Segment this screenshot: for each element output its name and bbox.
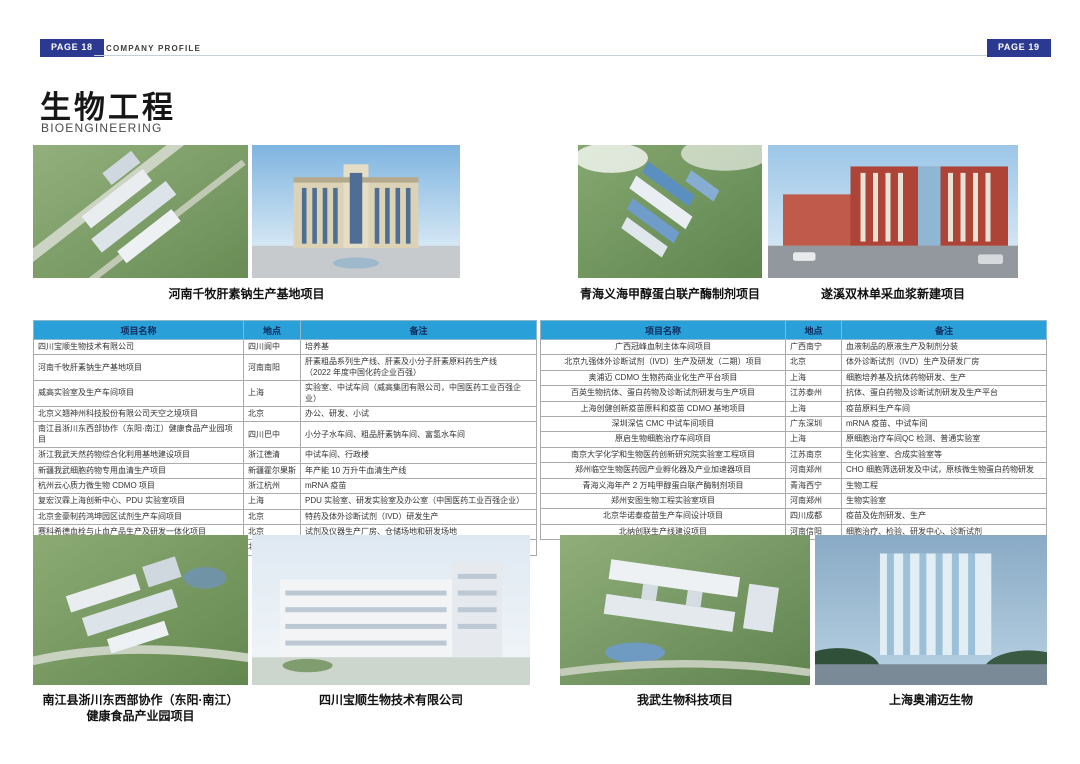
glass-building-illustration bbox=[815, 535, 1047, 685]
project-name-cell: 北京华诺泰疫苗生产车间设计项目 bbox=[541, 509, 786, 524]
project-note-cell: mRNA 疫苗、中试车间 bbox=[842, 416, 1047, 431]
project-note-cell: 特药及体外诊断试剂（IVD）研发生产 bbox=[301, 509, 537, 524]
project-location-cell: 北京 bbox=[244, 406, 301, 421]
column-header-project-name: 项目名称 bbox=[541, 321, 786, 340]
column-header-location: 地点 bbox=[244, 321, 301, 340]
project-note-cell: 肝素粗品系列生产线、肝素及小分子肝素原料药生产线 （2022 年度中国化药企业百… bbox=[301, 355, 537, 381]
table-row: 郑州临空生物医药园产业孵化器及产业加速器项目 河南郑州 CHO 细胞筛选研发及中… bbox=[541, 463, 1047, 478]
project-note-cell: 体外诊断试剂（IVD）生产及研发厂房 bbox=[842, 355, 1047, 370]
table-row: 杭州云心质力微生物 CDMO 项目 浙江杭州 mRNA 疫苗 bbox=[34, 478, 537, 493]
project-location-cell: 上海 bbox=[786, 370, 842, 385]
caption-shanghai-oupumai: 上海奥浦迈生物 bbox=[815, 692, 1047, 708]
project-name-cell: 新疆我武细胞药物专用血清生产项目 bbox=[34, 463, 244, 478]
photo-henan-qianmu-aerial bbox=[33, 145, 248, 278]
project-name-cell: 奥浦迈 CDMO 生物药商业化生产平台项目 bbox=[541, 370, 786, 385]
project-location-cell: 四川阆中 bbox=[244, 340, 301, 355]
project-location-cell: 河南南阳 bbox=[244, 355, 301, 381]
project-note-cell: 原细胞治疗车间QC 检测、普通实验室 bbox=[842, 432, 1047, 447]
project-note-cell: 抗体、蛋白药物及诊断试剂研发及生产平台 bbox=[842, 386, 1047, 401]
project-location-cell: 江苏泰州 bbox=[786, 386, 842, 401]
project-name-cell: 广西冠峰血制主体车间项目 bbox=[541, 340, 786, 355]
project-location-cell: 上海 bbox=[244, 494, 301, 509]
project-note-cell: mRNA 疫苗 bbox=[301, 478, 537, 493]
caption-qinghai-yihai: 青海义海甲醇蛋白联产酶制剂项目 bbox=[568, 286, 772, 302]
table-row: 广西冠峰血制主体车间项目 广西南宁 血液制品的原液生产及制剂分装 bbox=[541, 340, 1047, 355]
project-name-cell: 南江县浙川东西部协作（东阳·南江）健康食品产业园项目 bbox=[34, 422, 244, 448]
table-row: 深圳深信 CMC 中试车间项目 广东深圳 mRNA 疫苗、中试车间 bbox=[541, 416, 1047, 431]
project-location-cell: 上海 bbox=[786, 401, 842, 416]
column-header-note: 备注 bbox=[842, 321, 1047, 340]
project-location-cell: 江苏南京 bbox=[786, 447, 842, 462]
aerial-park-illustration bbox=[33, 145, 248, 278]
table-row: 新疆我武细胞药物专用血清生产项目 新疆霍尔果斯 年产能 10 万升牛血清生产线 bbox=[34, 463, 537, 478]
project-name-cell: 复宏汉霖上海创新中心、PDU 实验室项目 bbox=[34, 494, 244, 509]
table-header-row: 项目名称 地点 备注 bbox=[34, 321, 537, 340]
page-number-badge-right: PAGE 19 bbox=[987, 39, 1051, 57]
project-name-cell: 浙江我武天然药物综合化利用基地建设项目 bbox=[34, 448, 244, 463]
project-note-cell: 生化实验室、合成实验室等 bbox=[842, 447, 1047, 462]
project-location-cell: 浙江杭州 bbox=[244, 478, 301, 493]
red-building-illustration bbox=[768, 145, 1018, 278]
project-table-right: 项目名称 地点 备注 广西冠峰血制主体车间项目 广西南宁 血液制品的原液生产及制… bbox=[540, 320, 1047, 540]
column-header-location: 地点 bbox=[786, 321, 842, 340]
project-location-cell: 广西南宁 bbox=[786, 340, 842, 355]
project-note-cell: 疫苗及佐剂研发、生产 bbox=[842, 509, 1047, 524]
project-note-cell: 实验室、中试车间（威高集团有限公司，中国医药工业百强企业） bbox=[301, 381, 537, 407]
caption-sichuan-baoshun: 四川宝顺生物技术有限公司 bbox=[252, 692, 530, 708]
aerial-campus-illustration bbox=[33, 535, 248, 685]
caption-nanjiang-park: 南江县浙川东西部协作（东阳·南江） 健康食品产业园项目 bbox=[33, 692, 248, 724]
project-note-cell: 细胞培养基及抗体药物研发、生产 bbox=[842, 370, 1047, 385]
project-name-cell: 上海创健创新疫苗原料和疫苗 CDMO 基地项目 bbox=[541, 401, 786, 416]
project-name-cell: 原启生物细胞治疗车间项目 bbox=[541, 432, 786, 447]
photo-suixi-shuanglin-building bbox=[768, 145, 1018, 278]
table-row: 青海义海年产 2 万吨甲醇蛋白联产酶制剂项目 青海西宁 生物工程 bbox=[541, 478, 1047, 493]
project-name-cell: 青海义海年产 2 万吨甲醇蛋白联产酶制剂项目 bbox=[541, 478, 786, 493]
table-row: 北京华诺泰疫苗生产车间设计项目 四川成都 疫苗及佐剂研发、生产 bbox=[541, 509, 1047, 524]
project-note-cell: CHO 细胞筛选研发及中试，原核微生物蛋白药物研发 bbox=[842, 463, 1047, 478]
project-name-cell: 北京九强体外诊断试剂（IVD）生产及研发（二期）项目 bbox=[541, 355, 786, 370]
table-row: 南江县浙川东西部协作（东阳·南江）健康食品产业园项目 四川巴中 小分子水车间、粗… bbox=[34, 422, 537, 448]
project-location-cell: 上海 bbox=[244, 381, 301, 407]
table-row: 北京义翘神州科技股份有限公司天空之境项目 北京 办公、研发、小试 bbox=[34, 406, 537, 421]
photo-sichuan-baoshun-building bbox=[252, 535, 530, 685]
project-name-cell: 郑州临空生物医药园产业孵化器及产业加速器项目 bbox=[541, 463, 786, 478]
project-note-cell: 疫苗原料生产车间 bbox=[842, 401, 1047, 416]
table-row: 浙江我武天然药物综合化利用基地建设项目 浙江德清 中试车间、行政楼 bbox=[34, 448, 537, 463]
table-row: 南京大学化学和生物医药创新研究院实验室工程项目 江苏南京 生化实验室、合成实验室… bbox=[541, 447, 1047, 462]
project-note-cell: 生物实验室 bbox=[842, 493, 1047, 508]
table-row: 奥浦迈 CDMO 生物药商业化生产平台项目 上海 细胞培养基及抗体药物研发、生产 bbox=[541, 370, 1047, 385]
project-location-cell: 河南郑州 bbox=[786, 493, 842, 508]
project-name-cell: 河南千牧肝素钠生产基地项目 bbox=[34, 355, 244, 381]
project-location-cell: 广东深圳 bbox=[786, 416, 842, 431]
column-header-note: 备注 bbox=[301, 321, 537, 340]
photo-shanghai-oupumai-building bbox=[815, 535, 1047, 685]
table-row: 四川宝顺生物技术有限公司 四川阆中 培养基 bbox=[34, 340, 537, 355]
project-note-cell: 生物工程 bbox=[842, 478, 1047, 493]
aerial-campus-illustration bbox=[560, 535, 810, 685]
project-name-cell: 百英生物抗体、蛋白药物及诊断试剂研发与生产项目 bbox=[541, 386, 786, 401]
table-row: 上海创健创新疫苗原料和疫苗 CDMO 基地项目 上海 疫苗原料生产车间 bbox=[541, 401, 1047, 416]
project-location-cell: 北京 bbox=[786, 355, 842, 370]
project-location-cell: 青海西宁 bbox=[786, 478, 842, 493]
photo-nanjiang-park-aerial bbox=[33, 535, 248, 685]
table-row: 郑州安图生物工程实验室项目 河南郑州 生物实验室 bbox=[541, 493, 1047, 508]
project-name-cell: 杭州云心质力微生物 CDMO 项目 bbox=[34, 478, 244, 493]
project-location-cell: 上海 bbox=[786, 432, 842, 447]
project-location-cell: 新疆霍尔果斯 bbox=[244, 463, 301, 478]
building-front-illustration bbox=[252, 145, 460, 278]
project-name-cell: 南京大学化学和生物医药创新研究院实验室工程项目 bbox=[541, 447, 786, 462]
project-table-left: 项目名称 地点 备注 四川宝顺生物技术有限公司 四川阆中 培养基 河南千牧肝素钠… bbox=[33, 320, 537, 556]
project-note-cell: 年产能 10 万升牛血清生产线 bbox=[301, 463, 537, 478]
project-note-cell: 中试车间、行政楼 bbox=[301, 448, 537, 463]
photo-wowu-biotech-aerial bbox=[560, 535, 810, 685]
project-location-cell: 四川成都 bbox=[786, 509, 842, 524]
project-note-cell: 小分子水车间、粗品肝素钠车间、富氢水车间 bbox=[301, 422, 537, 448]
table-row: 北京金豪制药鸿坤园区试剂生产车间项目 北京 特药及体外诊断试剂（IVD）研发生产 bbox=[34, 509, 537, 524]
project-note-cell: PDU 实验室、研发实验室及办公室（中国医药工业百强企业） bbox=[301, 494, 537, 509]
project-location-cell: 北京 bbox=[244, 509, 301, 524]
project-note-cell: 培养基 bbox=[301, 340, 537, 355]
table-row: 百英生物抗体、蛋白药物及诊断试剂研发与生产项目 江苏泰州 抗体、蛋白药物及诊断试… bbox=[541, 386, 1047, 401]
aerial-factory-illustration bbox=[578, 145, 762, 278]
project-location-cell: 四川巴中 bbox=[244, 422, 301, 448]
caption-suixi-shuanglin: 遂溪双林单采血浆新建项目 bbox=[768, 286, 1018, 302]
column-header-project-name: 项目名称 bbox=[34, 321, 244, 340]
table-row: 威高实验室及生产车间项目 上海 实验室、中试车间（威高集团有限公司，中国医药工业… bbox=[34, 381, 537, 407]
project-name-cell: 北京义翘神州科技股份有限公司天空之境项目 bbox=[34, 406, 244, 421]
project-note-cell: 血液制品的原液生产及制剂分装 bbox=[842, 340, 1047, 355]
project-location-cell: 河南郑州 bbox=[786, 463, 842, 478]
caption-henan-qianmu: 河南千牧肝素钠生产基地项目 bbox=[33, 286, 460, 302]
project-note-cell: 办公、研发、小试 bbox=[301, 406, 537, 421]
caption-wowu-biotech: 我武生物科技项目 bbox=[560, 692, 810, 708]
project-location-cell: 浙江德清 bbox=[244, 448, 301, 463]
company-profile-label: COMPANY PROFILE bbox=[106, 44, 201, 53]
page-subtitle: BIOENGINEERING bbox=[41, 121, 162, 135]
project-name-cell: 四川宝顺生物技术有限公司 bbox=[34, 340, 244, 355]
table-header-row: 项目名称 地点 备注 bbox=[541, 321, 1047, 340]
table-row: 复宏汉霖上海创新中心、PDU 实验室项目 上海 PDU 实验室、研发实验室及办公… bbox=[34, 494, 537, 509]
table-row: 原启生物细胞治疗车间项目 上海 原细胞治疗车间QC 检测、普通实验室 bbox=[541, 432, 1047, 447]
table-row: 河南千牧肝素钠生产基地项目 河南南阳 肝素粗品系列生产线、肝素及小分子肝素原料药… bbox=[34, 355, 537, 381]
project-name-cell: 北京金豪制药鸿坤园区试剂生产车间项目 bbox=[34, 509, 244, 524]
photo-qinghai-yihai-aerial bbox=[578, 145, 762, 278]
photo-henan-qianmu-building bbox=[252, 145, 460, 278]
project-name-cell: 威高实验室及生产车间项目 bbox=[34, 381, 244, 407]
white-building-illustration bbox=[252, 535, 530, 685]
project-name-cell: 深圳深信 CMC 中试车间项目 bbox=[541, 416, 786, 431]
header-divider bbox=[94, 55, 987, 56]
table-row: 北京九强体外诊断试剂（IVD）生产及研发（二期）项目 北京 体外诊断试剂（IVD… bbox=[541, 355, 1047, 370]
brochure-page-spread: PAGE 18 COMPANY PROFILE PAGE 19 生物工程 BIO… bbox=[0, 0, 1080, 764]
project-name-cell: 郑州安图生物工程实验室项目 bbox=[541, 493, 786, 508]
